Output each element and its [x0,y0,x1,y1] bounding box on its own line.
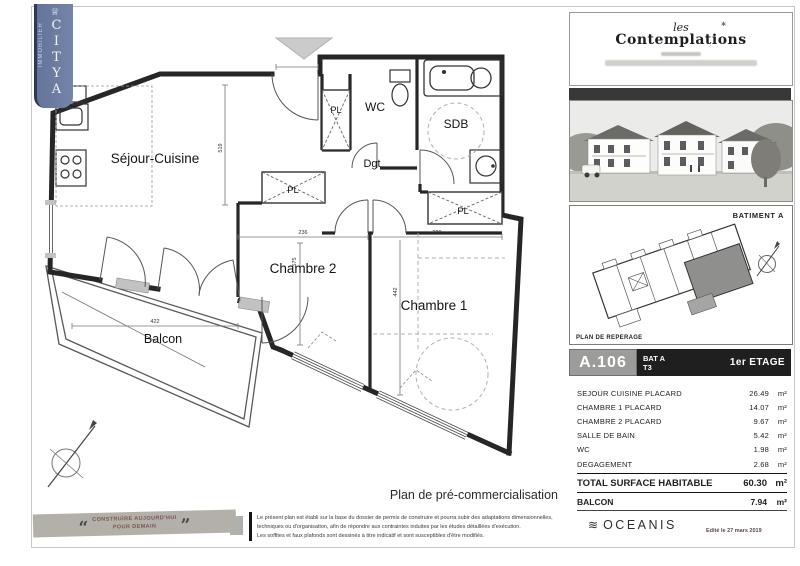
slogan-line2: POUR DEMAIN [113,523,157,530]
table-row: CHAMBRE 1 PLACARD 14.07 m² [577,400,787,414]
unit-code: A.106 [569,349,637,376]
dim-ch2-width: 236 [298,230,307,236]
toilet [390,70,410,106]
window-chambre1 [376,389,469,440]
room-label-balcon: Balcon [144,332,182,346]
citya-logo: ♕ CITYA IMMOBILIER [34,4,73,108]
compass-icon [48,420,97,487]
document-title: Plan de pré-commercialisation [336,488,558,502]
slogan-line1: CONSTRUIRE AUJOURD'HUI [92,515,177,523]
table-row: WC 1.98 m² [577,443,787,457]
legend-bar [249,512,252,541]
surface-table: SEJOUR CUISINE PLACARD 26.49 m² CHAMBRE … [577,386,787,511]
batiment-label: BATIMENT A [733,211,784,220]
plan-sheet: Séjour-Cuisine Chambre 2 Chambre 1 Balco… [0,0,800,566]
disclaimer-text: Le présent plan est établi sur la base d… [257,514,559,540]
keyplan-box: BATIMENT A [569,205,793,345]
unit-batiment: BAT A [643,354,665,363]
keyplan-compass-icon [757,241,780,276]
room-label-pl-sejour: PL [287,185,299,196]
room-label-dgt: Dgt [363,158,380,170]
washbasin [470,150,502,183]
wave-icon: ≋ [588,518,598,532]
bathtub [424,60,502,96]
keyplan-drawing [570,206,792,344]
table-row: DEGAGEMENT 2.68 m² [577,457,787,471]
program-name: Contemplations [570,32,792,48]
oceanis-wordmark: OCEANIS [603,518,677,532]
star-icon: ✱ [721,21,726,28]
illegible-address-line [605,60,757,66]
room-label-wc: WC [365,100,385,114]
dim-ch1-height: 442 [393,287,399,296]
window-sejour-left [45,200,56,258]
plan-reperage-label: PLAN DE REPERAGE [576,335,642,341]
divider-bar [569,88,791,100]
illegible-subtitle [661,52,701,56]
program-logo-box: les ✱ Contemplations [569,12,793,86]
room-label-pl-entree: PL [330,105,341,115]
table-row: SEJOUR CUISINE PLACARD 26.49 m² [577,386,787,400]
building-photo [569,100,793,202]
room-label-sejour: Séjour-Cuisine [111,151,200,166]
room-label-sdb: SDB [444,117,469,131]
unit-type: T3 [643,363,665,372]
citya-wordmark: CITYA [49,18,64,98]
unit-header-bar: A.106 BAT A T3 1er ETAGE [569,349,791,376]
room-label-chambre1: Chambre 1 [401,298,468,313]
turning-circles [373,103,505,410]
window-chambre2 [291,350,365,392]
total-surface-row: TOTAL SURFACE HABITABLE 60.30 m² [577,473,787,493]
balcon-row: BALCON 7.94 m² [577,493,787,511]
citya-immobilier-label: IMMOBILIER [38,22,44,67]
dim-ch1-width: 280 [432,230,441,236]
dim-ch2-height: 575 [292,257,298,266]
dim-balcon-width: 422 [150,319,159,325]
oceanis-logo: ≋ OCEANIS [588,518,677,532]
crown-icon: ♕ [37,7,73,18]
table-row: SALLE DE BAIN 5.42 m² [577,429,787,443]
unit-floor: 1er ETAGE [730,357,785,368]
room-label-pl-chambre1: PL [457,206,469,217]
room-label-chambre2: Chambre 2 [270,261,337,276]
edit-date: Edité le 27 mars 2019 [706,528,762,534]
table-row: CHAMBRE 2 PLACARD 9.67 m² [577,414,787,428]
dim-sejour-height: 519 [218,143,224,152]
